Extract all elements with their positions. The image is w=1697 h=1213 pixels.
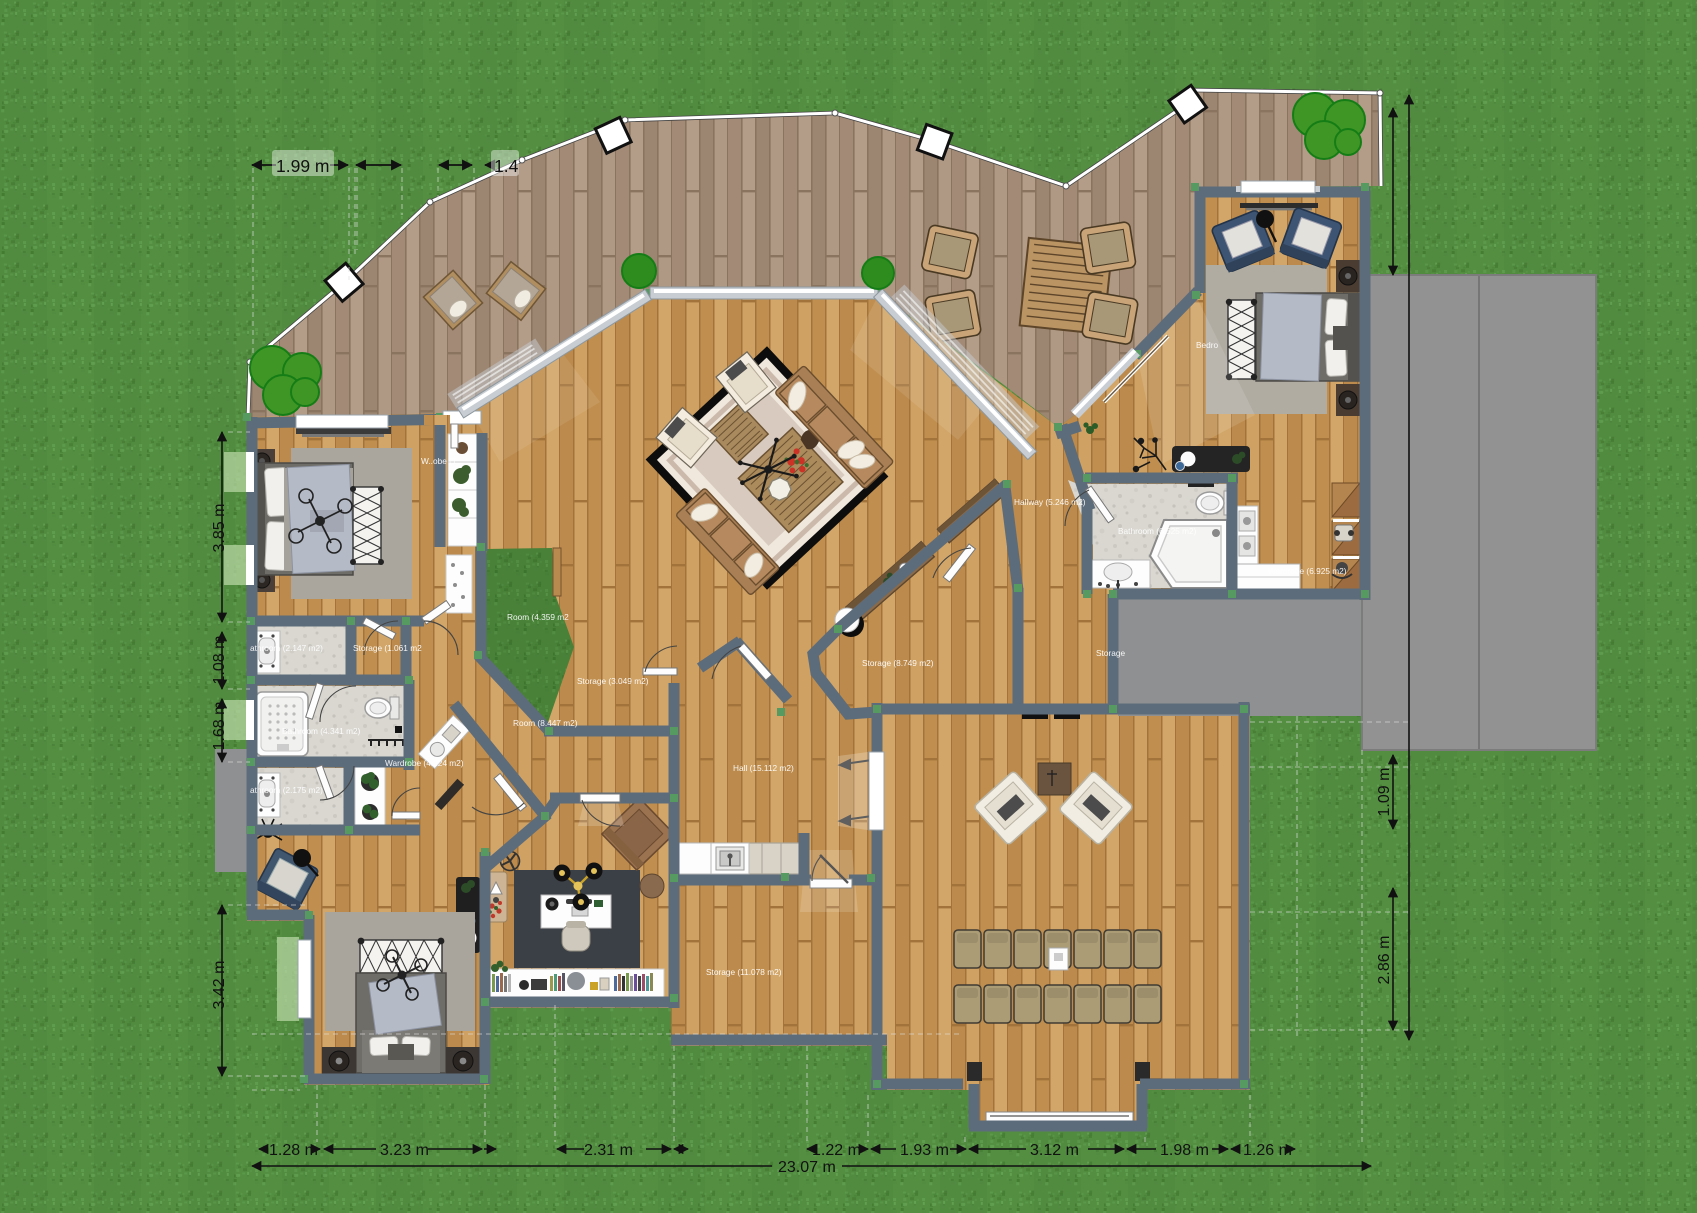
svg-text:2.86 m: 2.86 m [1376,936,1393,985]
svg-text:Bathroom (4.341 m2): Bathroom (4.341 m2) [282,726,361,736]
svg-text:1.09 m: 1.09 m [1376,768,1393,817]
svg-text:1.68 m: 1.68 m [211,702,228,751]
svg-text:Wardrobe (6.925 m2): Wardrobe (6.925 m2) [1268,566,1347,576]
svg-text:athroom (2.147 m2): athroom (2.147 m2) [250,643,323,653]
svg-text:1.93 m: 1.93 m [900,1142,949,1159]
svg-text:Hallway (5.246 m2): Hallway (5.246 m2) [1014,497,1086,507]
svg-text:3.23 m: 3.23 m [380,1142,429,1159]
svg-text:1.26 m: 1.26 m [1243,1142,1292,1159]
svg-text:1.4: 1.4 [494,156,519,176]
svg-text:W..obe (1..: W..obe (1.. [421,456,461,466]
svg-text:Storage (3.049 m2): Storage (3.049 m2) [577,676,649,686]
svg-text:Storage (1.061 m2: Storage (1.061 m2 [353,643,422,653]
svg-text:Room (8.447 m2): Room (8.447 m2) [513,718,578,728]
svg-text:1.98 m: 1.98 m [1160,1142,1209,1159]
svg-text:1.22 m: 1.22 m [812,1142,861,1159]
svg-text:Room (4.359 m2: Room (4.359 m2 [507,612,569,622]
svg-text:1.08 m: 1.08 m [211,636,228,685]
svg-text:2.31 m: 2.31 m [584,1142,633,1159]
svg-text:Storage (11.078 m2): Storage (11.078 m2) [706,967,782,977]
svg-text:3.85 m: 3.85 m [211,504,228,553]
svg-text:Bathroom (6.525 m2): Bathroom (6.525 m2) [1118,526,1197,536]
svg-text:1.28 m: 1.28 m [269,1142,318,1159]
svg-text:3.12 m: 3.12 m [1030,1142,1079,1159]
svg-text:3.42 m: 3.42 m [211,961,228,1010]
svg-text:Storage (8.749 m2): Storage (8.749 m2) [862,658,934,668]
svg-text:athroom (2.175 m2): athroom (2.175 m2) [250,785,323,795]
svg-text:23.07 m: 23.07 m [778,1159,836,1176]
svg-text:Bedro: Bedro [1196,340,1219,350]
svg-text:Storage: Storage [1096,648,1125,658]
svg-text:Hall (15.112 m2): Hall (15.112 m2) [733,763,794,773]
svg-text:1.99 m: 1.99 m [276,156,330,176]
svg-text:Wardrobe (4.224 m2): Wardrobe (4.224 m2) [385,758,464,768]
